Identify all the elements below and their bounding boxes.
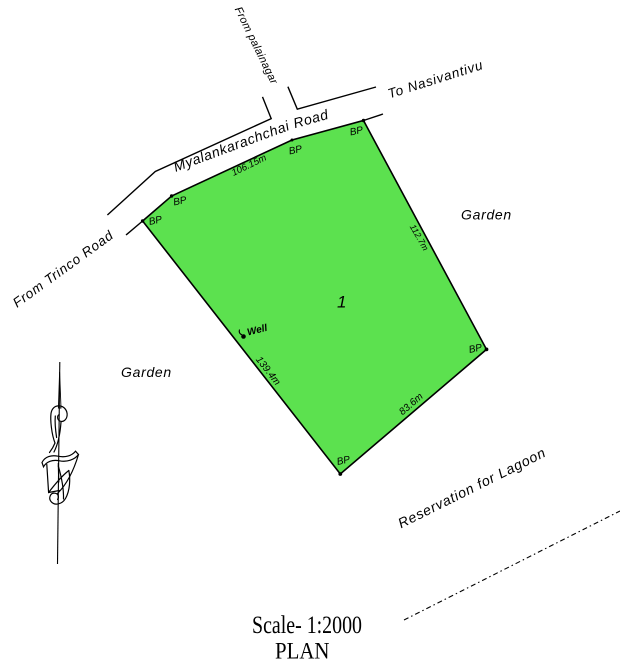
svg-text:Scale- 1:2000: Scale- 1:2000 xyxy=(252,612,362,639)
svg-text:1: 1 xyxy=(337,293,346,312)
svg-text:Garden: Garden xyxy=(461,207,512,223)
svg-text:PLAN: PLAN xyxy=(275,639,330,665)
svg-text:Garden: Garden xyxy=(121,364,172,380)
